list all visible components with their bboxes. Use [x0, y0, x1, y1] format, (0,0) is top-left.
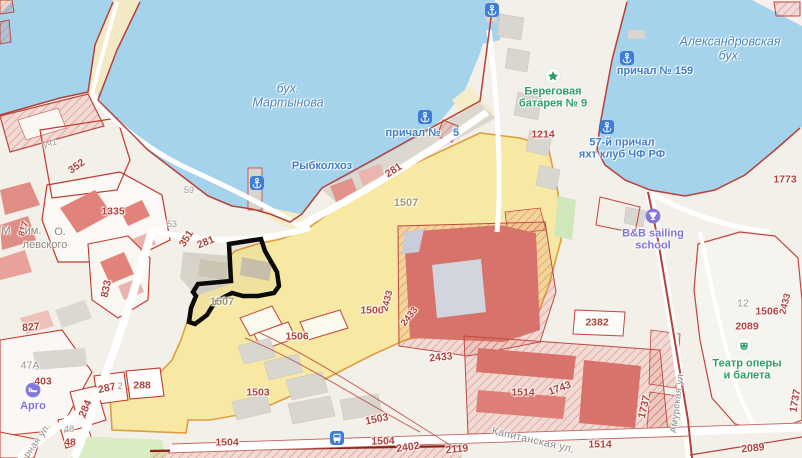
pier [628, 30, 645, 39]
bb-sailing-school-label[interactable]: B&B sailingschool [622, 228, 684, 253]
anchor-icon[interactable] [418, 110, 432, 124]
poi-label-line: Береговая [519, 86, 587, 98]
poi-label-line: и балета [712, 370, 781, 382]
poi-label-line: причал № 159 [617, 65, 693, 77]
poi-label-line: school [622, 240, 684, 252]
opera-ballet-theatre-label[interactable]: Театр оперыи балета [712, 358, 781, 383]
prichal-159-label[interactable]: причал № 159 [617, 65, 693, 77]
poi-label-line: Рыбколхоз [292, 160, 352, 172]
poi-label-line: Арго [20, 400, 46, 412]
poi-label-line: яхт клуб ЧФ РФ [579, 149, 665, 161]
anchor-icon[interactable] [250, 176, 264, 190]
argo-label[interactable]: Арго [20, 400, 46, 412]
prichal-label-fragment[interactable]: причал № [386, 127, 441, 139]
prichal-57-yacht-club-label[interactable]: 57-й причаляхт клуб ЧФ РФ [579, 137, 665, 162]
argo-hotel-icon[interactable] [25, 382, 41, 398]
battery-star-icon[interactable] [545, 68, 561, 84]
anchor-icon[interactable] [600, 120, 614, 134]
poi-label-line: 57-й причал [579, 137, 665, 149]
poi-label-line: B&B sailing [622, 228, 684, 240]
sailing-school-trophy-icon[interactable] [645, 208, 661, 224]
theatre-mask-icon[interactable] [736, 338, 752, 354]
poi-label-line: батарея № 9 [519, 98, 587, 110]
anchor-icon[interactable] [485, 3, 499, 17]
bus-stop-icon[interactable] [330, 431, 344, 445]
poi-label-line: Театр оперы [712, 358, 781, 370]
rybkolkhoz-label[interactable]: Рыбколхоз [292, 160, 352, 172]
beregovaya-batareya-label[interactable]: Береговаябатарея № 9 [519, 86, 587, 111]
poi-label-line: причал № [386, 127, 441, 139]
anchor-icon[interactable] [620, 51, 634, 65]
map-canvas[interactable]: уч13521335817Мим.О.левского5953351281281… [0, 0, 802, 458]
prichal-number-fragment[interactable]: 5 [453, 127, 459, 139]
poi-label-line: 5 [453, 127, 459, 139]
